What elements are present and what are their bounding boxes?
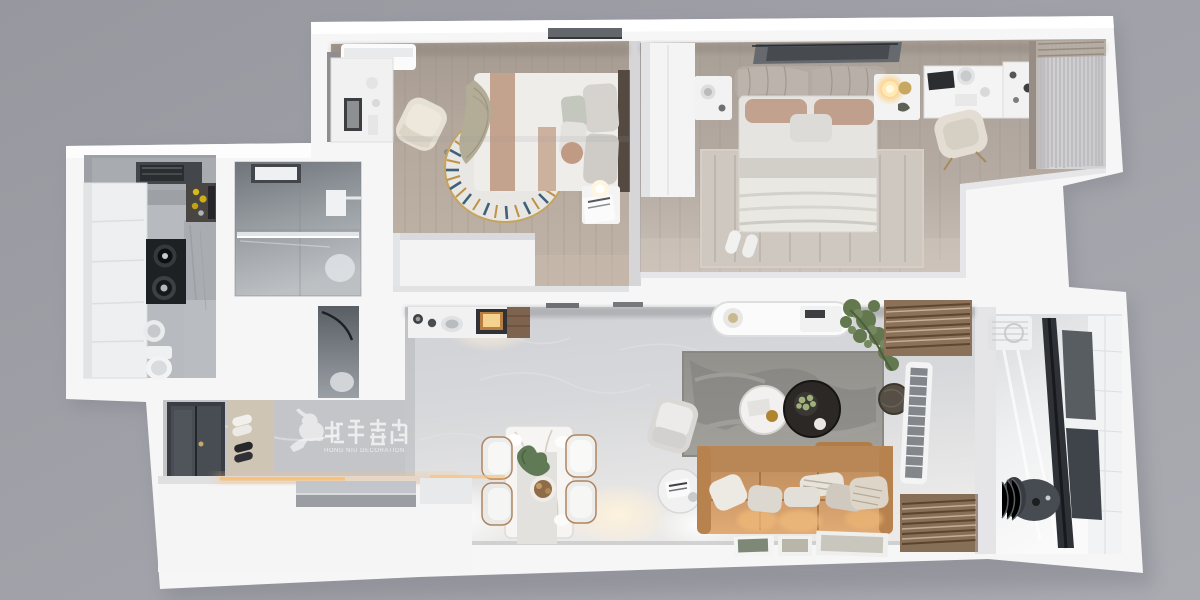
svg-text:HONG NIU DECORATION: HONG NIU DECORATION [324,448,405,454]
